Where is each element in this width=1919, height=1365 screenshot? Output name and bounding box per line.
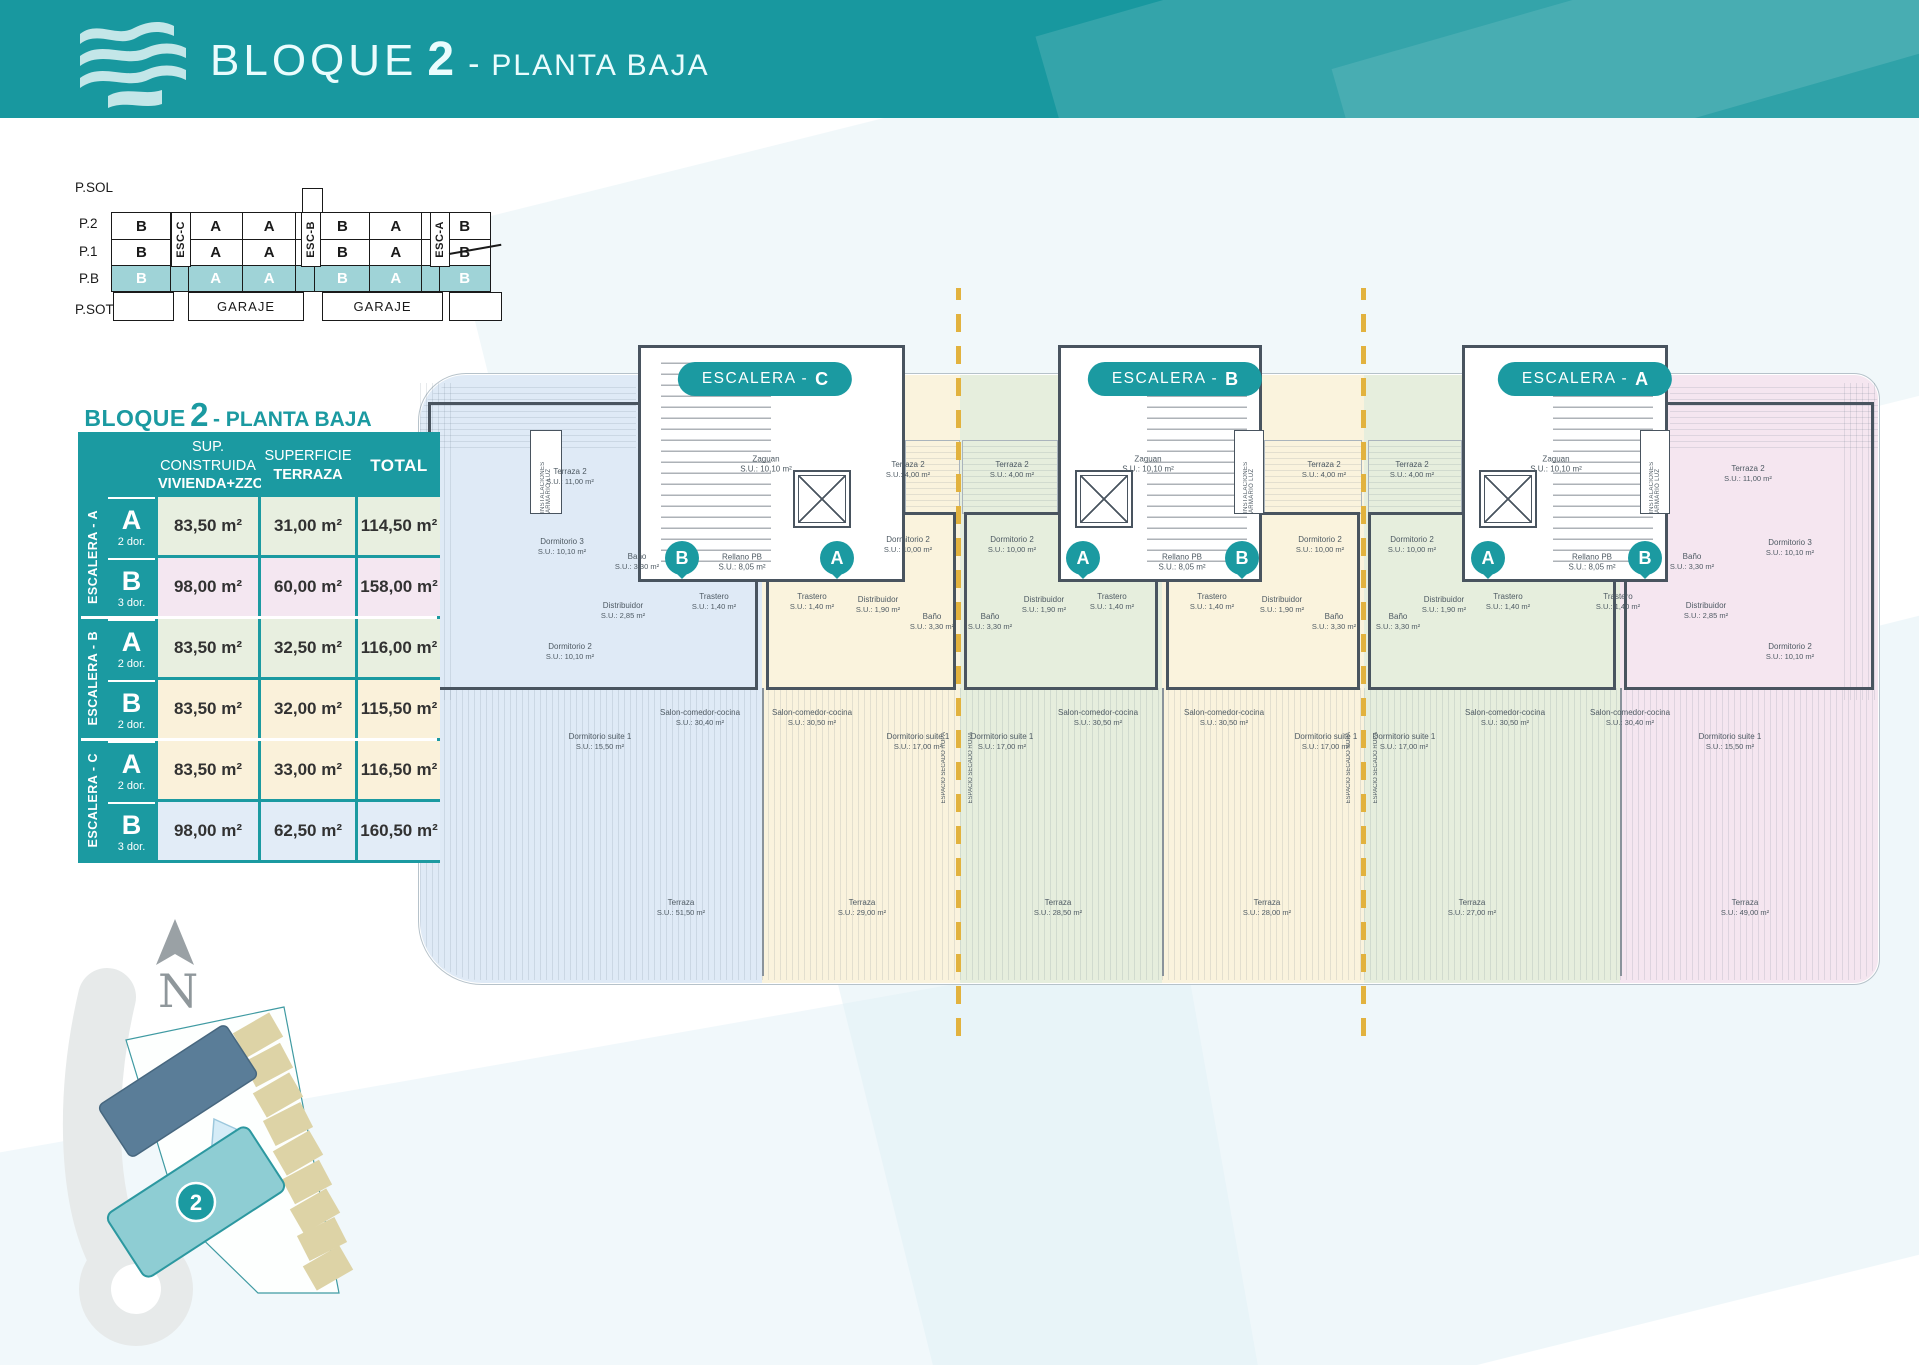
unit-cell: A2 dor. xyxy=(108,497,155,555)
room-label: DistribuidorS.U.: 1,90 m² xyxy=(1260,595,1304,615)
room-label: TrasteroS.U.: 1,40 m² xyxy=(790,592,834,612)
room-label: Salon-comedor-cocinaS.U.: 30,40 m² xyxy=(1590,708,1670,728)
table-group-escalera-a: ESCALERA - A A2 dor. 83,50 m² 31,00 m² 1… xyxy=(81,497,437,616)
north-arrow-icon xyxy=(156,919,194,965)
floor-label-pb: P.B xyxy=(79,271,115,286)
section-row-pb: B A A B A B xyxy=(113,265,491,292)
section-cell: A xyxy=(242,239,297,267)
floor-label-p2: P.2 xyxy=(79,216,115,231)
section-cell: A xyxy=(188,265,243,292)
esc-b-column: ESC-B xyxy=(301,212,321,267)
section-cell: A xyxy=(188,212,243,240)
logo-waves-icon xyxy=(78,12,188,108)
room-label: Salon-comedor-cocinaS.U.: 30,50 m² xyxy=(1058,708,1138,728)
table-title-number: 2 xyxy=(190,396,208,433)
elevator xyxy=(1479,470,1537,528)
room-label: Terraza 2S.U.: 11,00 m² xyxy=(546,467,594,487)
building-section-diagram: P.SOL P.2 P.1 P.B P.SOT B A A B A B B A … xyxy=(75,150,515,335)
pill-escalera-b: ESCALERA -B xyxy=(1088,362,1262,396)
room-label: DistribuidorS.U.: 1,90 m² xyxy=(856,595,900,615)
room-label: TrasteroS.U.: 1,40 m² xyxy=(1190,592,1234,612)
room-label: Dormitorio suite 1S.U.: 17,00 m² xyxy=(1373,732,1436,752)
floor-label-p1: P.1 xyxy=(79,244,115,259)
room-label: DistribuidorS.U.: 2,85 m² xyxy=(1684,601,1728,621)
page-title: BLOQUE2-PLANTA BAJA xyxy=(210,32,710,87)
psot-cell xyxy=(113,292,174,321)
construida-value: 83,50 m² xyxy=(158,619,258,677)
terraza-value: 31,00 m² xyxy=(261,497,355,555)
table-header-row: SUP. CONSTRUIDAVIVIENDA+ZZCC SUPERFICIET… xyxy=(81,435,437,497)
table-header-spacer xyxy=(81,435,155,497)
header-terraza: SUPERFICIETERRAZA xyxy=(261,435,355,497)
title-number: 2 xyxy=(427,33,454,86)
total-value: 114,50 m² xyxy=(358,497,440,555)
room-label: Terraza 2S.U.: 4,00 m² xyxy=(1302,460,1346,480)
terrace-divider xyxy=(1620,688,1622,976)
room-label: TerrazaS.U.: 28,50 m² xyxy=(1034,898,1082,918)
terraza-value: 32,50 m² xyxy=(261,619,355,677)
section-cell: B xyxy=(314,239,370,267)
room-label: BañoS.U.: 3,30 m² xyxy=(1376,612,1420,632)
room-label: TrasteroS.U.: 1,40 m² xyxy=(1596,592,1640,612)
construida-value: 83,50 m² xyxy=(158,497,258,555)
unit-pin-a-a: A xyxy=(1471,541,1505,575)
room-label: Terraza 2S.U.: 4,00 m² xyxy=(990,460,1034,480)
zaguan-label: ZaguanS.U.: 10,10 m² xyxy=(1530,455,1582,476)
rellano-label: Rellano PBS.U.: 8,05 m² xyxy=(1568,553,1615,574)
section-cell: B xyxy=(314,212,370,240)
table-title-rest: - PLANTA BAJA xyxy=(213,408,372,431)
room-label: Dormitorio 2S.U.: 10,10 m² xyxy=(1766,642,1814,662)
room-label: DistribuidorS.U.: 2,85 m² xyxy=(601,601,645,621)
elevator xyxy=(793,470,851,528)
room-label: Salon-comedor-cocinaS.U.: 30,50 m² xyxy=(1465,708,1545,728)
section-esc-gap xyxy=(295,265,316,292)
unit-cell: B2 dor. xyxy=(108,680,155,738)
unit-cell: B3 dor. xyxy=(108,558,155,616)
room-label: TerrazaS.U.: 29,00 m² xyxy=(838,898,886,918)
zaguan-label: ZaguanS.U.: 10,10 m² xyxy=(1122,455,1174,476)
room-label: Dormitorio 2S.U.: 10,00 m² xyxy=(1296,535,1344,555)
header-construida: SUP. CONSTRUIDAVIVIENDA+ZZCC xyxy=(158,435,258,497)
esc-a-column: ESC-A xyxy=(430,212,450,267)
instalaciones-closet: INSTALACIONES ARMARIO LUZ xyxy=(1640,430,1670,514)
unit-cell: B3 dor. xyxy=(108,802,155,860)
room-label: TerrazaS.U.: 27,00 m² xyxy=(1448,898,1496,918)
elevator xyxy=(1075,470,1133,528)
section-cell: B xyxy=(111,239,171,267)
pill-escalera-c: ESCALERA -C xyxy=(678,362,852,396)
psot-cell xyxy=(449,292,502,321)
terrace-divider xyxy=(1162,688,1164,976)
table-title: BLOQUE 2 - PLANTA BAJA xyxy=(78,396,378,434)
room-label: Dormitorio 2S.U.: 10,10 m² xyxy=(546,642,594,662)
table-title-word: BLOQUE xyxy=(84,405,185,431)
room-label: Terraza 2S.U.: 4,00 m² xyxy=(886,460,930,480)
room-label: TerrazaS.U.: 51,50 m² xyxy=(657,898,705,918)
construida-value: 98,00 m² xyxy=(158,558,258,616)
room-label: TrasteroS.U.: 1,40 m² xyxy=(1486,592,1530,612)
room-label: TerrazaS.U.: 28,00 m² xyxy=(1243,898,1291,918)
pill-escalera-a: ESCALERA -A xyxy=(1498,362,1672,396)
room-label: Terraza 2S.U.: 4,00 m² xyxy=(1390,460,1434,480)
rellano-label: Rellano PBS.U.: 8,05 m² xyxy=(1158,553,1205,574)
unit-pin-c-a: A xyxy=(820,541,854,575)
section-cell: A xyxy=(242,265,297,292)
table-grid: SUP. CONSTRUIDAVIVIENDA+ZZCC SUPERFICIET… xyxy=(78,432,440,863)
section-cell: A xyxy=(369,212,423,240)
floor-label-psot: P.SOT xyxy=(75,302,111,317)
group-label: ESCALERA - C xyxy=(81,741,105,860)
section-cell: A xyxy=(369,265,423,292)
section-tower xyxy=(302,188,323,214)
group-label: ESCALERA - B xyxy=(81,619,105,738)
room-label: Dormitorio suite 1S.U.: 15,50 m² xyxy=(1699,732,1762,752)
section-cell: A xyxy=(188,239,243,267)
esc-c-column: ESC-C xyxy=(171,212,191,267)
terraza-value: 60,00 m² xyxy=(261,558,355,616)
unit-pin-a-b: B xyxy=(1628,541,1662,575)
north-letter: N xyxy=(158,964,198,1018)
header-banner: BLOQUE2-PLANTA BAJA xyxy=(0,0,1919,118)
title-word: BLOQUE xyxy=(210,36,417,85)
section-cell: B xyxy=(111,212,171,240)
terrace-divider xyxy=(762,688,764,976)
terraza-value: 33,00 m² xyxy=(261,741,355,799)
zaguan-label: ZaguanS.U.: 10,10 m² xyxy=(740,455,792,476)
room-label: BañoS.U.: 3,30 m² xyxy=(615,552,659,572)
unit-cell: A2 dor. xyxy=(108,619,155,677)
total-value: 115,50 m² xyxy=(358,680,440,738)
group-label: ESCALERA - A xyxy=(81,497,105,616)
block-2-badge-number: 2 xyxy=(190,1190,202,1215)
room-label: Dormitorio suite 1S.U.: 17,00 m² xyxy=(887,732,950,752)
room-label: Terraza 2S.U.: 11,00 m² xyxy=(1724,464,1772,484)
room-label: BañoS.U.: 3,30 m² xyxy=(1312,612,1356,632)
room-label: Salon-comedor-cocinaS.U.: 30,50 m² xyxy=(1184,708,1264,728)
construida-value: 83,50 m² xyxy=(158,741,258,799)
room-label: Salon-comedor-cocinaS.U.: 30,50 m² xyxy=(772,708,852,728)
room-label: Dormitorio 3S.U.: 10,10 m² xyxy=(1766,538,1814,558)
room-label: BañoS.U.: 3,30 m² xyxy=(1670,552,1714,572)
terraza-value: 62,50 m² xyxy=(261,802,355,860)
unit-pin-c-b: B xyxy=(665,541,699,575)
header-total: TOTAL xyxy=(358,435,440,497)
total-value: 116,50 m² xyxy=(358,741,440,799)
room-label: TrasteroS.U.: 1,40 m² xyxy=(692,592,736,612)
room-label: TrasteroS.U.: 1,40 m² xyxy=(1090,592,1134,612)
terraza-value: 32,00 m² xyxy=(261,680,355,738)
site-plan: 2 N xyxy=(62,905,407,1350)
section-esc-gap xyxy=(170,265,190,292)
room-label: DistribuidorS.U.: 1,90 m² xyxy=(1022,595,1066,615)
instalaciones-closet: INSTALACIONES ARMARIO LUZ xyxy=(1234,430,1264,514)
table-group-escalera-c: ESCALERA - C A2 dor. 83,50 m² 33,00 m² 1… xyxy=(81,738,437,860)
room-label: Salon-comedor-cocinaS.U.: 30,40 m² xyxy=(660,708,740,728)
room-label: DistribuidorS.U.: 1,90 m² xyxy=(1422,595,1466,615)
room-label: Dormitorio 3S.U.: 10,10 m² xyxy=(538,537,586,557)
zone-divider-dashed xyxy=(1361,288,1366,1036)
title-subtitle: PLANTA BAJA xyxy=(491,49,709,82)
floor-label-psol: P.SOL xyxy=(75,180,111,195)
section-cell: B xyxy=(439,265,491,292)
garage-cell: GARAJE xyxy=(188,292,304,321)
rellano-label: Rellano PBS.U.: 8,05 m² xyxy=(718,553,765,574)
room-label: BañoS.U.: 3,30 m² xyxy=(968,612,1012,632)
section-esc-gap xyxy=(421,265,440,292)
construida-value: 98,00 m² xyxy=(158,802,258,860)
brochure-page: { "header": {"title_word":"BLOQUE","titl… xyxy=(0,0,1919,1365)
room-label: Dormitorio 2S.U.: 10,00 m² xyxy=(988,535,1036,555)
garage-cell: GARAJE xyxy=(322,292,443,321)
room-label: TerrazaS.U.: 49,00 m² xyxy=(1721,898,1769,918)
construida-value: 83,50 m² xyxy=(158,680,258,738)
unit-pin-b-b: B xyxy=(1225,541,1259,575)
room-label: Dormitorio 2S.U.: 10,00 m² xyxy=(1388,535,1436,555)
unit-cell: A2 dor. xyxy=(108,741,155,799)
total-value: 116,00 m² xyxy=(358,619,440,677)
section-cell: B xyxy=(111,265,171,292)
title-separator: - xyxy=(468,45,479,83)
unit-pin-b-a: A xyxy=(1066,541,1100,575)
section-cell: A xyxy=(369,239,423,267)
section-cell: B xyxy=(314,265,370,292)
zone-divider-dashed xyxy=(956,288,961,1036)
table-group-escalera-b: ESCALERA - B A2 dor. 83,50 m² 32,50 m² 1… xyxy=(81,616,437,738)
total-value: 160,50 m² xyxy=(358,802,440,860)
room-label: BañoS.U.: 3,30 m² xyxy=(910,612,954,632)
total-value: 158,00 m² xyxy=(358,558,440,616)
room-label: Dormitorio suite 1S.U.: 17,00 m² xyxy=(1295,732,1358,752)
room-label: Dormitorio suite 1S.U.: 17,00 m² xyxy=(971,732,1034,752)
room-label: Dormitorio 2S.U.: 10,00 m² xyxy=(884,535,932,555)
section-cell: A xyxy=(242,212,297,240)
room-label: Dormitorio suite 1S.U.: 15,50 m² xyxy=(569,732,632,752)
